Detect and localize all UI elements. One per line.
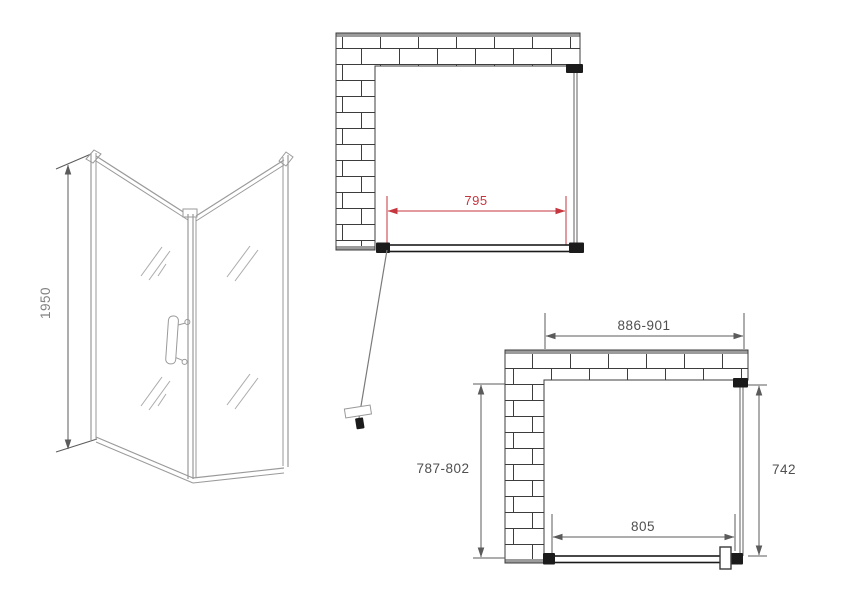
- wall-profile-right: [279, 152, 293, 166]
- dimension-label-height: 1950: [38, 287, 53, 319]
- wall-bracket: [566, 64, 583, 73]
- extension-line: [56, 154, 91, 169]
- technical-drawing-sheet: 1950: [0, 0, 866, 612]
- door-handle: [165, 316, 190, 365]
- dimension-label-right-depth: 742: [772, 462, 796, 477]
- dimension-bottom-width: 805: [552, 514, 735, 554]
- wall-section: [336, 33, 580, 250]
- dimension-label-top-width: 886-901: [617, 318, 670, 333]
- extension-line: [56, 439, 97, 452]
- dimension-label-left-depth: 787-802: [416, 461, 469, 476]
- open-door-panel: [359, 250, 387, 418]
- wall-cap: [506, 351, 748, 355]
- glass-door-plan: [543, 547, 743, 569]
- glass-panel-plan: [376, 243, 584, 254]
- wall-cap: [337, 246, 375, 250]
- dimension-top-width: 886-901: [545, 313, 744, 349]
- wall-cap: [506, 559, 544, 563]
- open-door-swing: [344, 250, 387, 431]
- iso-door-panel: [91, 153, 193, 483]
- shower-enclosure-drawing: 1950: [0, 0, 866, 612]
- post-top-bracket: [183, 209, 197, 217]
- glass-reflection-marks: [141, 247, 170, 410]
- wall-cap: [337, 34, 580, 38]
- iso-view-shower-enclosure: 1950: [38, 150, 293, 483]
- wall-profile-left: [86, 150, 101, 163]
- hinge-bracket: [543, 553, 555, 565]
- side-panel-plan: [566, 64, 583, 246]
- wall-section: [505, 350, 748, 563]
- wall-bracket: [733, 378, 748, 388]
- door-handle-plan: [720, 547, 731, 569]
- corner-bracket: [569, 243, 584, 254]
- open-door-handle: [344, 405, 373, 431]
- dimension-right-depth: 742: [748, 385, 796, 556]
- dimension-height-1950: 1950: [38, 154, 97, 452]
- dimension-width-795: 795: [387, 193, 566, 252]
- iso-side-panel: [193, 155, 288, 483]
- glass-reflection-marks: [227, 246, 258, 409]
- hinge-bracket: [376, 243, 390, 254]
- dimension-label-bottom-width: 805: [631, 519, 655, 534]
- iso-corner-post: [183, 209, 197, 479]
- dimension-label-width: 795: [464, 193, 487, 208]
- bottom-plan-view: 886-901 787-802 742: [416, 313, 796, 569]
- dimension-left-depth: 787-802: [416, 384, 505, 558]
